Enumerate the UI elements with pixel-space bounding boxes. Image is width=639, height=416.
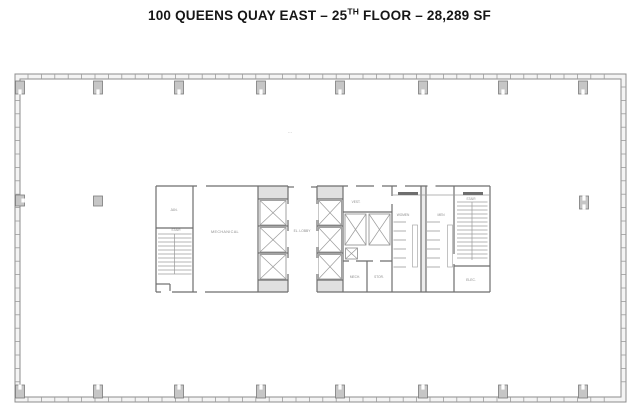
column-notch (259, 89, 262, 94)
label-stair-left: STAIR (171, 228, 181, 232)
door-opening (397, 185, 405, 187)
label-floor-note: ··· (288, 130, 292, 135)
label-electrical: ELEC. (466, 278, 476, 282)
door-opening (197, 291, 205, 293)
column-notch (338, 89, 341, 94)
column-notch (582, 196, 585, 201)
column-notch (421, 89, 424, 94)
elevator-shaft-cap (317, 186, 343, 199)
door-opening (197, 185, 206, 187)
door-opening (349, 260, 356, 262)
door-header (463, 192, 483, 195)
column-notch (581, 89, 584, 94)
label-vestibule: VEST. (352, 200, 361, 204)
column-notch (581, 385, 584, 390)
structural-column (94, 196, 103, 206)
elevator-shaft-cap (258, 186, 288, 199)
column-notch (96, 385, 99, 390)
column-notch (177, 89, 180, 94)
label-janitor: JAN. (170, 208, 177, 212)
label-storage-room: STOR. (374, 275, 384, 279)
door-opening (287, 231, 290, 247)
label-mech-room: MECH. (350, 275, 360, 279)
label-stair-right: STAIR (466, 197, 476, 201)
column-notch (501, 385, 504, 390)
floor-plan-page: 100 QUEENS QUAY EAST – 25TH FLOOR – 28,2… (0, 0, 639, 416)
label-mechanical: MECHANICAL (211, 230, 239, 234)
door-opening (428, 185, 436, 187)
column-notch (582, 204, 585, 209)
door-opening (316, 204, 319, 220)
column-notch (259, 385, 262, 390)
label-women-washroom: WOMEN (397, 213, 410, 217)
column-notch (338, 385, 341, 390)
door-opening (391, 196, 393, 204)
door-opening (287, 204, 290, 220)
door-opening (453, 254, 455, 264)
core-left-block (156, 186, 288, 292)
label-men-washroom: MEN (437, 213, 445, 217)
column-notch (96, 89, 99, 94)
door-header (398, 192, 418, 195)
column-notch (177, 385, 180, 390)
column-notch (18, 385, 21, 390)
door-opening (348, 185, 356, 187)
plumbing-chase (422, 187, 427, 292)
core-room-fills (156, 186, 490, 292)
label-elevator-lobby: EL. LOBBY (294, 229, 312, 233)
elevator-shaft-cap (258, 280, 288, 292)
door-opening (287, 258, 290, 274)
floor-plan-svg: JAN. STAIR MECHANICAL EL. LOBBY VEST. ME… (0, 0, 639, 416)
door-opening (316, 258, 319, 274)
door-opening (161, 291, 172, 293)
door-opening (374, 185, 382, 187)
column-notch (421, 385, 424, 390)
column-notch (18, 89, 21, 94)
column-notch (21, 199, 25, 203)
door-opening (373, 260, 380, 262)
elevator-shaft-cap (317, 280, 343, 292)
column-notch (501, 89, 504, 94)
door-opening (316, 231, 319, 247)
